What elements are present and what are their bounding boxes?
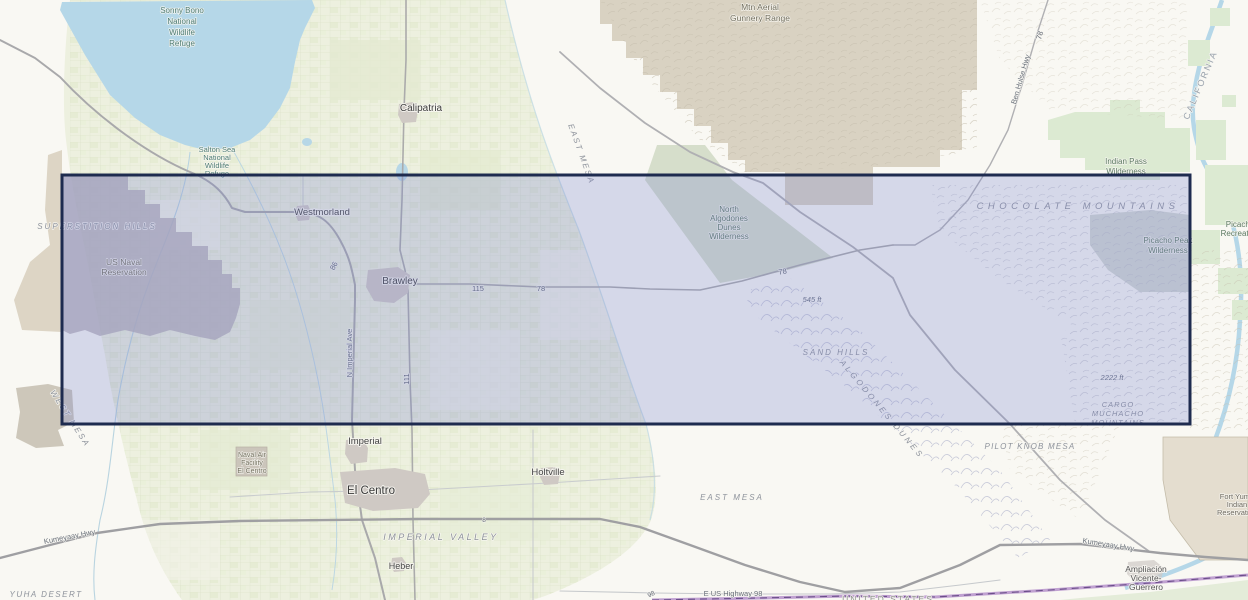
label-naval-air-facility: Naval Air (238, 452, 267, 459)
label-indian-pass: Indian Pass (1105, 157, 1147, 166)
label-sonny-bono: National (167, 17, 197, 26)
label-sonny-bono: Refuge (169, 39, 195, 48)
label-picacho-recreation: Recreation (1221, 229, 1248, 238)
label-sonny-bono: Wildlife (169, 28, 195, 37)
selection-rectangle[interactable] (62, 175, 1190, 424)
label-pilot-knob-mesa: PILOT KNOB MESA (985, 442, 1076, 451)
label-el-centro: El Centro (347, 485, 395, 497)
label-imperial: Imperial (348, 436, 382, 447)
label-amplacion: Guerrero (1129, 582, 1163, 592)
label-holtville: Holtville (531, 467, 564, 478)
label-gunnery-range: Mtn Aerial (741, 2, 779, 12)
label-sonny-bono: Sonny Bono (160, 6, 204, 15)
label-naval-air-facility: Facility (241, 460, 263, 467)
label-picacho-recreation: Picacho (1226, 220, 1248, 229)
map-canvas[interactable]: Sonny Bono National Wildlife Refuge Salt… (0, 0, 1248, 600)
label-us-highway-98: E US Highway 98 (704, 589, 763, 598)
label-fort-yuma: Reservation (1217, 508, 1248, 517)
pond-small (302, 138, 312, 146)
label-imperial-valley: IMPERIAL VALLEY (383, 532, 498, 542)
label-calipatria: Calipatria (400, 103, 443, 114)
label-i8: 8 (482, 517, 486, 524)
label-yuha-desert: YUHA DESERT (10, 590, 83, 599)
label-east-mesa-lower: EAST MESA (700, 493, 764, 502)
label-gunnery-range: Gunnery Range (730, 13, 790, 23)
label-united-states: UNITED STATES (842, 594, 934, 600)
map-root: Sonny Bono National Wildlife Refuge Salt… (0, 0, 1248, 600)
label-naval-air-facility: El Centro (237, 468, 266, 475)
label-heber: Heber (389, 561, 414, 571)
